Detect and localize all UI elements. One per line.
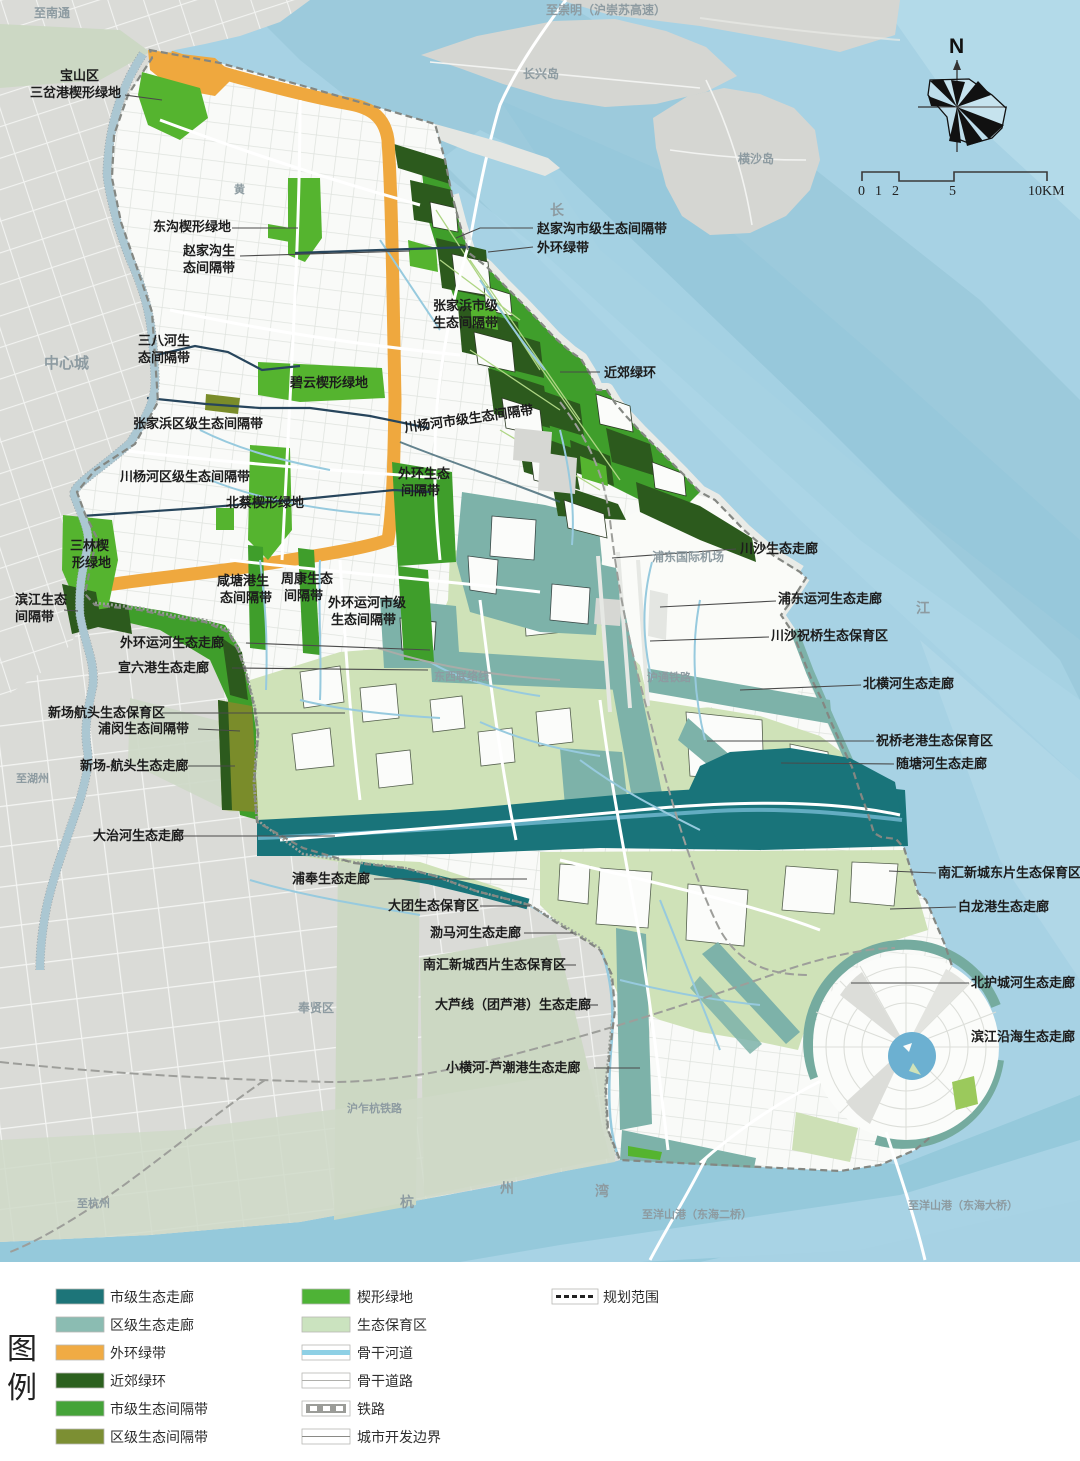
svg-text:形绿地: 形绿地 [72,555,111,570]
svg-text:图: 图 [7,1333,37,1366]
svg-text:规划范围: 规划范围 [603,1289,659,1305]
svg-text:至杭州: 至杭州 [77,1196,110,1210]
svg-text:大团生态保育区: 大团生态保育区 [388,898,479,913]
svg-text:5: 5 [949,184,956,199]
svg-text:碧云楔形绿地: 碧云楔形绿地 [289,375,368,390]
svg-text:东西联络线: 东西联络线 [434,669,489,683]
svg-text:态间隔带: 态间隔带 [220,590,272,605]
svg-text:湾: 湾 [595,1183,609,1199]
svg-text:生态间隔带: 生态间隔带 [433,315,498,330]
svg-text:至湖州: 至湖州 [16,771,49,785]
svg-text:中心城: 中心城 [44,354,89,372]
svg-text:北横河生态走廊: 北横河生态走廊 [863,676,954,691]
svg-text:张家浜市级: 张家浜市级 [433,298,499,313]
svg-text:沪通铁路: 沪通铁路 [647,670,692,684]
svg-text:北蔡楔形绿地: 北蔡楔形绿地 [226,495,304,510]
svg-text:泐马河生态走廊: 泐马河生态走廊 [430,925,521,940]
svg-text:1: 1 [875,184,882,199]
svg-text:东沟楔形绿地: 东沟楔形绿地 [153,219,231,234]
svg-text:沪乍杭铁路: 沪乍杭铁路 [347,1101,403,1115]
svg-text:江: 江 [916,600,930,616]
svg-text:例: 例 [7,1372,37,1405]
svg-text:滨江沿海生态走廊: 滨江沿海生态走廊 [971,1029,1075,1044]
svg-text:骨干河道: 骨干河道 [357,1345,413,1361]
svg-text:浦东国际机场: 浦东国际机场 [652,549,724,564]
svg-text:赵家沟市级生态间隔带: 赵家沟市级生态间隔带 [536,221,667,236]
svg-text:2: 2 [892,184,899,199]
svg-text:态间隔带: 态间隔带 [183,260,235,275]
svg-text:大治河生态走廊: 大治河生态走廊 [93,828,184,843]
svg-text:生态间隔带: 生态间隔带 [331,612,396,627]
svg-text:10KM: 10KM [1028,184,1065,199]
svg-text:浦奉生态走廊: 浦奉生态走廊 [292,871,370,886]
svg-text:外环运河市级: 外环运河市级 [327,595,407,610]
svg-text:0: 0 [858,184,865,199]
svg-text:咸塘港生: 咸塘港生 [217,573,269,588]
svg-text:白龙港生态走廊: 白龙港生态走廊 [958,899,1049,914]
svg-text:铁路: 铁路 [357,1401,385,1417]
svg-text:至崇明（沪崇苏高速）: 至崇明（沪崇苏高速） [546,2,666,17]
svg-text:三林楔: 三林楔 [70,538,109,553]
svg-text:至南通: 至南通 [34,5,70,20]
svg-text:间隔带: 间隔带 [401,483,440,498]
svg-text:随塘河生态走廊: 随塘河生态走廊 [896,756,987,771]
svg-text:张家浜区级生态间隔带: 张家浜区级生态间隔带 [133,416,263,431]
svg-text:新场-航头生态走廊: 新场-航头生态走廊 [80,758,188,773]
svg-text:外环生态: 外环生态 [397,466,450,481]
svg-text:州: 州 [499,1180,514,1196]
svg-text:宝山区: 宝山区 [60,68,99,83]
svg-text:川沙生态走廊: 川沙生态走廊 [739,541,818,556]
svg-text:城市开发边界: 城市开发边界 [357,1429,441,1445]
svg-text:长: 长 [550,202,565,218]
svg-text:北护城河生态走廊: 北护城河生态走廊 [971,975,1075,990]
svg-text:宣六港生态走廊: 宣六港生态走廊 [118,660,209,675]
svg-text:黄: 黄 [234,182,245,196]
svg-text:骨干道路: 骨干道路 [357,1373,413,1389]
svg-text:浦闵生态间隔带: 浦闵生态间隔带 [98,721,189,736]
svg-text:长兴岛: 长兴岛 [523,66,559,81]
svg-text:区级生态走廊: 区级生态走廊 [110,1317,194,1333]
svg-text:赵家沟生: 赵家沟生 [182,243,235,258]
svg-text:周康生态: 周康生态 [281,571,333,586]
svg-text:间隔带: 间隔带 [15,609,54,624]
svg-text:小横河-芦潮港生态走廊: 小横河-芦潮港生态走廊 [446,1060,580,1075]
svg-text:外环绿带: 外环绿带 [536,240,589,255]
svg-text:祝桥老港生态保育区: 祝桥老港生态保育区 [876,733,993,748]
svg-text:横沙岛: 横沙岛 [738,151,774,166]
svg-text:市级生态间隔带: 市级生态间隔带 [110,1401,208,1417]
svg-text:川杨河区级生态间隔带: 川杨河区级生态间隔带 [119,469,250,484]
svg-text:奉贤区: 奉贤区 [297,1000,334,1015]
svg-text:近郊绿环: 近郊绿环 [110,1373,166,1389]
svg-text:至洋山港（东海二桥）: 至洋山港（东海二桥） [642,1207,752,1221]
svg-text:外环运河生态走廊: 外环运河生态走廊 [119,635,224,650]
svg-text:三岔港楔形绿地: 三岔港楔形绿地 [30,85,121,100]
svg-text:市级生态走廊: 市级生态走廊 [110,1289,194,1305]
svg-text:外环绿带: 外环绿带 [110,1345,166,1361]
svg-text:近郊绿环: 近郊绿环 [604,365,656,380]
svg-text:大芦线（团芦港）生态走廊: 大芦线（团芦港）生态走廊 [435,997,591,1012]
svg-text:区级生态间隔带: 区级生态间隔带 [110,1429,208,1445]
svg-text:楔形绿地: 楔形绿地 [357,1289,413,1305]
svg-text:南汇新城东片生态保育区: 南汇新城东片生态保育区 [938,865,1080,880]
svg-text:滨江生态: 滨江生态 [15,592,67,607]
svg-text:态间隔带: 态间隔带 [138,350,190,365]
svg-text:南汇新城西片生态保育区: 南汇新城西片生态保育区 [423,957,566,972]
svg-text:新场航头生态保育区: 新场航头生态保育区 [48,705,165,720]
svg-text:杭: 杭 [400,1194,414,1210]
svg-text:间隔带: 间隔带 [284,588,323,603]
svg-text:川沙祝桥生态保育区: 川沙祝桥生态保育区 [770,628,888,643]
svg-text:N: N [949,35,964,58]
svg-text:至洋山港（东海大桥）: 至洋山港（东海大桥） [908,1198,1018,1212]
svg-text:生态保育区: 生态保育区 [357,1317,427,1333]
svg-text:浦东运河生态走廊: 浦东运河生态走廊 [778,591,882,606]
svg-text:三八河生: 三八河生 [138,333,190,348]
